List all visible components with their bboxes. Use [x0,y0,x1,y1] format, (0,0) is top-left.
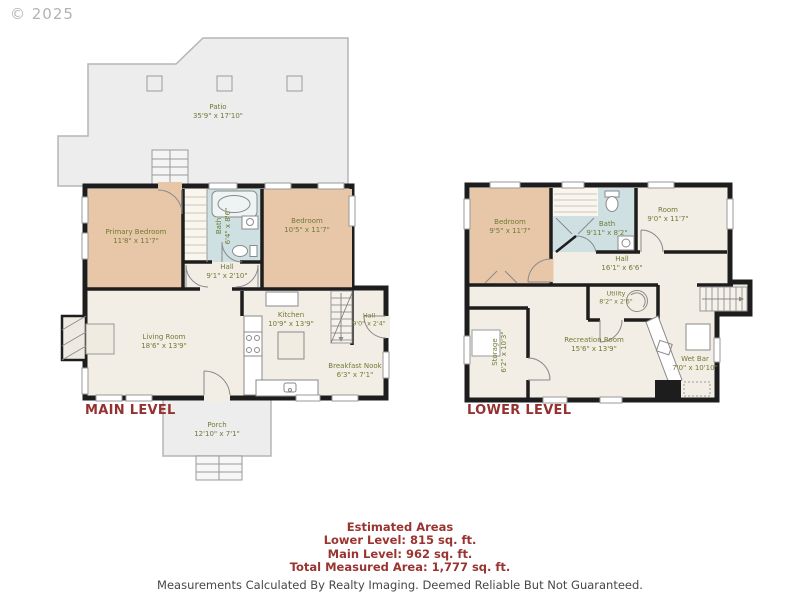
room-label-utility: Utility8'2" x 2'6" [599,290,633,307]
chimney-block [655,380,681,400]
room-label-primary-bedroom: Primary Bedroom11'8" x 11'7" [106,228,167,246]
room-label-recreation-room: Recreation Room15'6" x 13'9" [564,336,624,354]
room-label-breakfast-nook: Breakfast Nook6'3" x 7'1" [328,362,381,380]
room-label-wet-bar: Wet Bar7'0" x 10'10" [672,355,718,373]
main-stairs [331,291,352,343]
room-label-lower-bedroom: Bedroom9'5" x 11'7" [489,218,530,236]
lower-level-area: Lower Level: 815 sq. ft. [0,534,800,547]
room-label-kitchen: Kitchen10'9" x 13'9" [268,311,314,329]
estimated-areas-block: Estimated Areas Lower Level: 815 sq. ft.… [0,521,800,575]
room-label-bedroom: Bedroom10'5" x 11'7" [284,217,330,235]
room-label-porch: Porch12'10" x 7'1" [194,421,240,439]
lower-level-heading: LOWER LEVEL [467,403,571,418]
disclaimer-text: Measurements Calculated By Realty Imagin… [0,578,800,592]
room-label-main-bath: Bath6'4" x 8'6" [215,208,233,245]
room-label-patio: Patio35'9" x 17'10" [193,103,243,121]
lower-stairs [700,287,747,311]
porch-steps [196,456,242,480]
total-measured-area: Total Measured Area: 1,777 sq. ft. [0,561,800,574]
room-label-main-hall: Hall9'1" x 2'10" [206,263,247,281]
floorplan-page: © 2025 [0,0,800,600]
room-label-living-room: Living Room18'6" x 13'9" [141,333,187,351]
room-label-lower-bath: Bath9'11" x 8'2" [586,220,627,238]
room-label-lower-room: Room9'0" x 11'7" [647,206,688,224]
room-label-lower-hall: Hall16'1" x 6'6" [601,255,642,273]
floorplan-drawing [0,0,800,600]
main-level-area: Main Level: 962 sq. ft. [0,548,800,561]
room-label-kitchen-hall: Hall9'0" x 2'4" [352,312,386,329]
estimated-areas-title: Estimated Areas [0,521,800,534]
room-label-storage: Storage6'2" x 10'3" [491,331,509,372]
main-level-heading: MAIN LEVEL [85,403,176,418]
patio-stairs [152,150,188,184]
